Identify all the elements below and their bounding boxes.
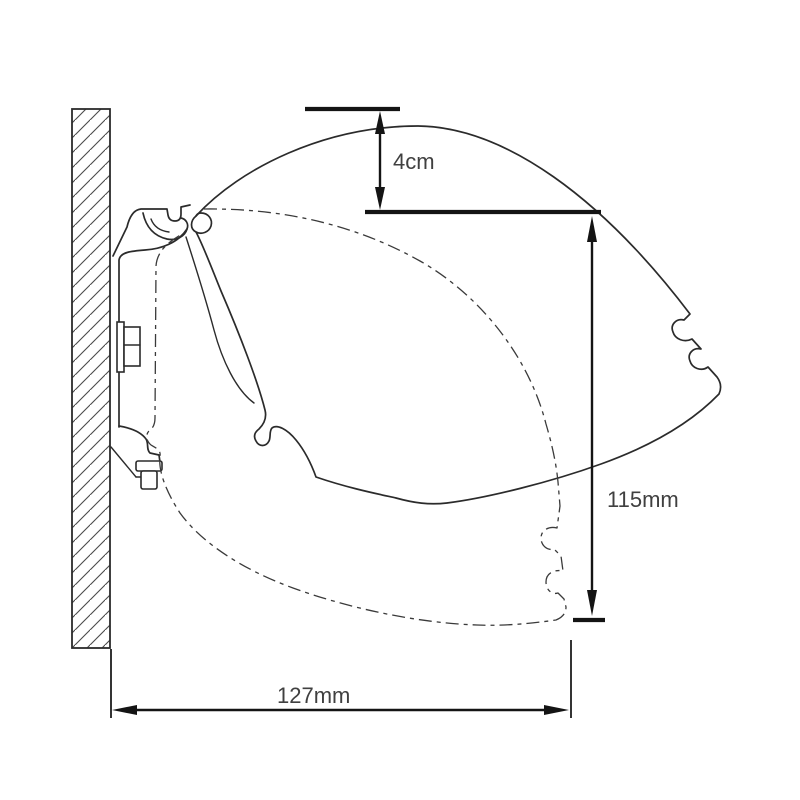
bolt-washer-plate — [117, 322, 124, 372]
height-arrowhead-down — [587, 590, 597, 616]
gap-dimension-label: 4cm — [393, 149, 435, 174]
height-dimension-label: 115mm — [607, 487, 679, 512]
bolt-head — [124, 327, 140, 366]
technical-drawing: 4cm 115mm 127mm — [0, 0, 800, 800]
projection-dimension-label: 127mm — [277, 683, 350, 708]
height-arrowhead-up — [587, 216, 597, 242]
bracket-hinge-cavity — [151, 219, 169, 232]
cassette-closed-outline — [147, 209, 566, 625]
wall-hatched-area — [72, 109, 110, 648]
gap-arrowhead-down — [375, 187, 385, 210]
drawing-canvas: 4cm 115mm 127mm — [0, 0, 800, 800]
bracket-front-edge — [119, 229, 187, 322]
dimension-height: 115mm — [573, 216, 679, 620]
bracket-foot — [119, 426, 160, 462]
dimension-projection: 127mm — [111, 640, 571, 718]
shell-closed-profile — [147, 209, 566, 625]
cassette-open-outline — [186, 126, 721, 504]
wall-section — [72, 109, 110, 648]
hex-bolt — [117, 322, 140, 372]
t-bolt-stem — [141, 471, 157, 489]
dimension-gap: 4cm — [305, 109, 601, 212]
mounting-bracket — [111, 205, 190, 489]
gap-arrowhead-up — [375, 111, 385, 134]
t-bolt — [136, 461, 162, 489]
projection-arrowhead-right — [544, 705, 569, 715]
t-bolt-flange — [136, 461, 162, 471]
shell-hinge-knuckle — [192, 213, 212, 233]
shell-inner-skin — [186, 237, 254, 403]
shell-open-profile — [196, 126, 721, 504]
projection-arrowhead-left — [112, 705, 137, 715]
bracket-foot-gusset — [111, 447, 136, 477]
